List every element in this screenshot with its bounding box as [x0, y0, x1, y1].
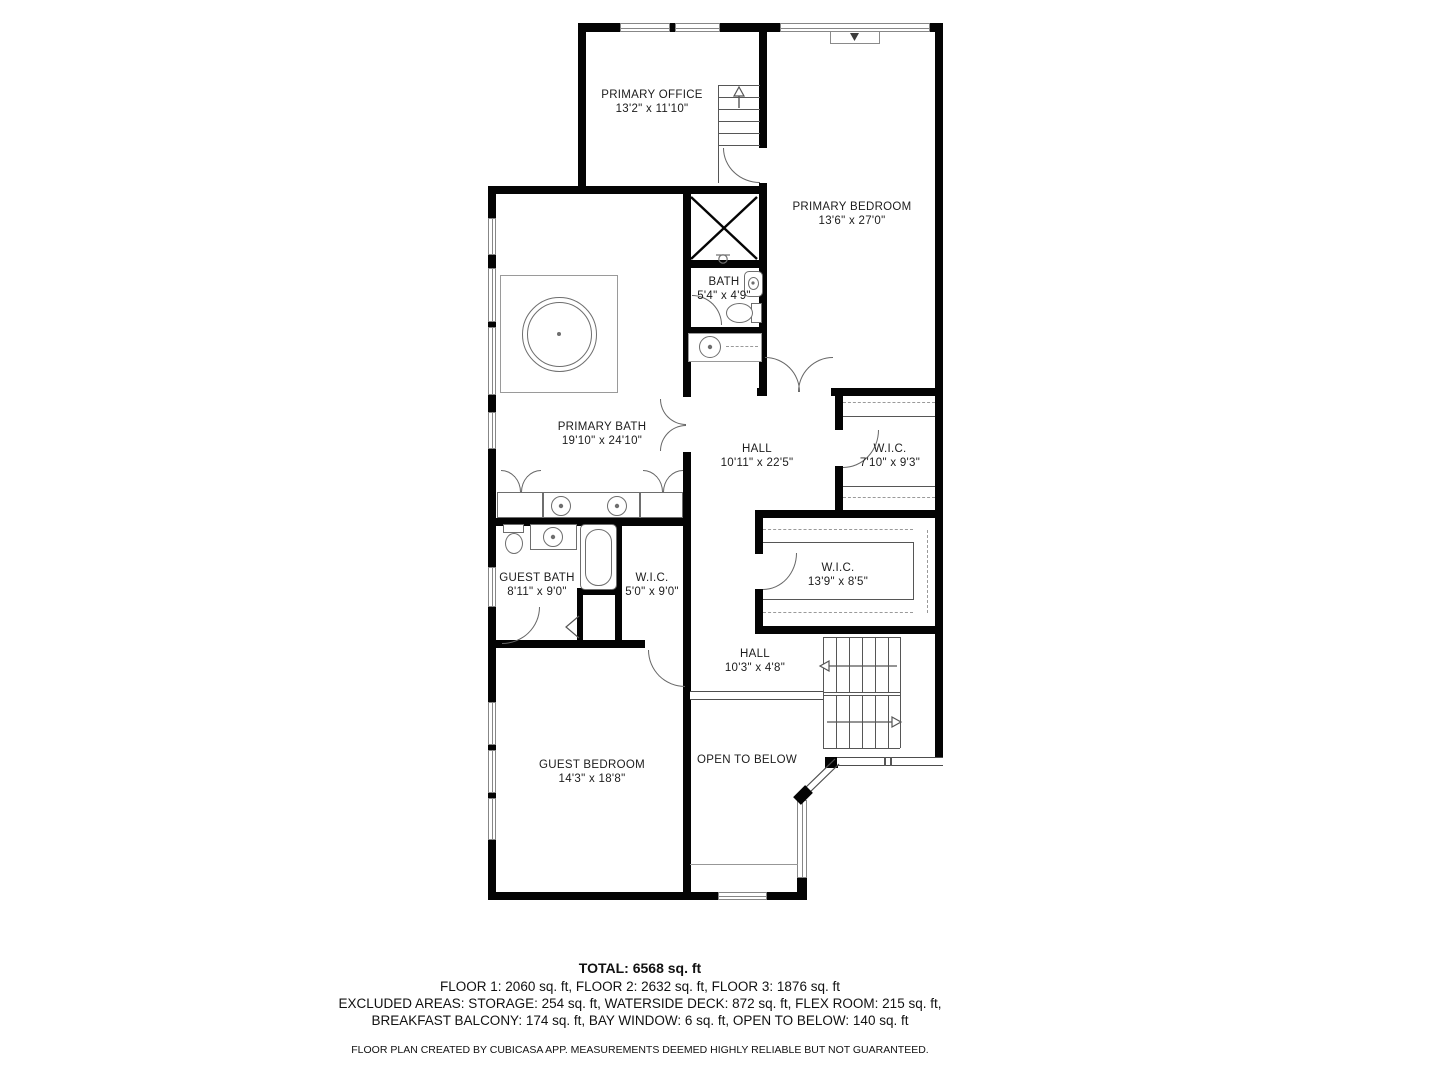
stairs-edge	[718, 85, 719, 183]
floor-areas-text: FLOOR 1: 2060 sq. ft, FLOOR 2: 2632 sq. …	[0, 979, 1280, 994]
stair-tread	[849, 695, 850, 748]
room-label-guest-bath: GUEST BATH 8'11" x 9'0"	[499, 571, 574, 599]
french-door-swing	[765, 357, 800, 392]
stair-tread	[862, 695, 863, 748]
stair-tread	[718, 97, 760, 98]
stairs-landing-line	[823, 692, 900, 693]
floor-below-edge	[690, 864, 798, 865]
shaft-x-icon	[691, 197, 757, 259]
stair-tread	[718, 133, 760, 134]
wall	[759, 23, 767, 148]
wall	[488, 186, 767, 194]
railing	[690, 691, 823, 700]
window-seat	[830, 31, 880, 44]
stairs-edge	[900, 637, 901, 748]
room-label-wic-13: W.I.C. 13'9" x 8'5"	[808, 561, 868, 589]
counter-dashed-line	[726, 346, 758, 347]
room-name: BATH	[697, 275, 751, 289]
closet-shelf-dashed	[843, 497, 935, 498]
closet-shelf-dashed	[843, 402, 935, 403]
stair-tread	[862, 637, 863, 692]
sink-icon	[543, 527, 563, 547]
closet-rod	[763, 599, 913, 600]
room-name: GUEST BATH	[499, 571, 574, 585]
total-area-text: TOTAL: 6568 sq. ft	[0, 960, 1280, 976]
room-name: PRIMARY BEDROOM	[792, 200, 911, 214]
wall	[578, 23, 586, 194]
stair-tread	[718, 109, 760, 110]
room-label-open-to-below: OPEN TO BELOW	[697, 753, 797, 767]
french-door-swing	[798, 357, 833, 392]
room-name: GUEST BEDROOM	[539, 758, 645, 772]
closet-rod	[763, 542, 913, 543]
window	[488, 567, 496, 607]
closet-shelf-dashed	[763, 612, 913, 613]
wall	[577, 593, 583, 648]
closet-door-swing	[521, 470, 541, 492]
stair-tread	[718, 145, 760, 146]
sink-icon	[699, 336, 721, 358]
railing-baluster	[890, 757, 892, 766]
wall	[835, 396, 843, 430]
room-dims: 7'10" x 9'3"	[860, 456, 920, 470]
wall	[683, 192, 691, 397]
room-label-wic-right: W.I.C. 7'10" x 9'3"	[860, 442, 920, 470]
room-label-hall-lower: HALL 10'3" x 4'8"	[725, 647, 785, 675]
arrow-head-icon	[820, 661, 829, 671]
room-label-hall-upper: HALL 10'11" x 22'5"	[721, 442, 794, 470]
closet-box	[497, 492, 543, 518]
excluded-areas-text-1: EXCLUDED AREAS: STORAGE: 254 sq. ft, WAT…	[0, 996, 1280, 1011]
room-dims: 5'0" x 9'0"	[625, 585, 679, 599]
wall	[755, 510, 943, 518]
wall	[683, 452, 691, 648]
room-name: HALL	[725, 647, 785, 661]
stair-tread	[875, 637, 876, 692]
bathtub-inner	[585, 529, 612, 586]
window	[718, 892, 767, 900]
window	[620, 23, 670, 32]
wall	[755, 626, 943, 634]
double-door-swing	[660, 425, 686, 451]
wall	[831, 388, 943, 396]
room-name: W.I.C.	[808, 561, 868, 575]
window	[797, 800, 807, 878]
room-dims: 10'3" x 4'8"	[725, 661, 785, 675]
room-label-primary-bedroom: PRIMARY BEDROOM 13'6" x 27'0"	[792, 200, 911, 228]
closet-shelf-dashed	[927, 530, 928, 613]
stair-tread	[836, 637, 837, 692]
toilet-icon	[505, 533, 523, 554]
wall	[935, 23, 943, 763]
disclaimer-text: FLOOR PLAN CREATED BY CUBICASA APP. MEAS…	[0, 1044, 1280, 1056]
closet-door-swing	[643, 470, 663, 492]
window	[488, 327, 496, 395]
stair-tread	[849, 637, 850, 692]
room-dims: 13'6" x 27'0"	[792, 214, 911, 228]
room-dims: 8'11" x 9'0"	[499, 585, 574, 599]
door-swing	[763, 553, 797, 590]
door-swing	[502, 607, 540, 644]
toilet-tank	[503, 524, 524, 533]
room-name: OPEN TO BELOW	[697, 753, 797, 767]
closet-rod	[913, 542, 914, 600]
room-label-primary-bath: PRIMARY BATH 19'10" x 24'10"	[558, 420, 647, 448]
wall	[755, 589, 763, 634]
stair-tread	[875, 695, 876, 748]
railing	[807, 764, 839, 795]
stairs-edge	[823, 748, 900, 749]
window	[488, 750, 496, 793]
wall	[835, 466, 843, 518]
room-name: PRIMARY BATH	[558, 420, 647, 434]
room-name: HALL	[721, 442, 794, 456]
stair-tread	[836, 695, 837, 748]
room-name: W.I.C.	[860, 442, 920, 456]
window	[488, 268, 496, 322]
summary-text-block: TOTAL: 6568 sq. ft FLOOR 1: 2060 sq. ft,…	[0, 960, 1280, 1056]
room-dims: 13'9" x 8'5"	[808, 575, 868, 589]
window	[675, 23, 720, 32]
room-dims: 13'2" x 11'10"	[601, 102, 703, 116]
floor-plan-canvas: PRIMARY OFFICE 13'2" x 11'10" PRIMARY BE…	[0, 0, 1440, 1080]
room-dims: 19'10" x 24'10"	[558, 434, 647, 448]
closet-door-swing	[501, 470, 521, 492]
stair-tread	[888, 637, 889, 692]
wall	[755, 518, 763, 554]
railing-baluster	[884, 757, 886, 766]
door-swing	[723, 148, 760, 183]
closet-rod	[843, 486, 935, 487]
room-dims: 14'3" x 18'8"	[539, 772, 645, 786]
room-label-primary-office: PRIMARY OFFICE 13'2" x 11'10"	[601, 88, 703, 116]
stair-tread	[718, 121, 760, 122]
room-dims: 10'11" x 22'5"	[721, 456, 794, 470]
window	[488, 412, 496, 449]
excluded-areas-text-2: BREAKFAST BALCONY: 174 sq. ft, BAY WINDO…	[0, 1013, 1280, 1028]
window	[488, 702, 496, 745]
arrow-head-icon	[734, 87, 744, 96]
window	[488, 798, 496, 840]
room-label-guest-bedroom: GUEST BEDROOM 14'3" x 18'8"	[539, 758, 645, 786]
window	[488, 218, 496, 255]
room-dims: 5'4" x 4'9"	[697, 289, 751, 303]
closet-rod	[843, 416, 935, 417]
sink-icon	[551, 496, 571, 516]
room-name: W.I.C.	[625, 571, 679, 585]
wall	[797, 878, 807, 893]
double-door-swing	[660, 399, 686, 425]
room-label-bath: BATH 5'4" x 4'9"	[697, 275, 751, 303]
shaft-x-icon	[691, 197, 757, 259]
room-name: PRIMARY OFFICE	[601, 88, 703, 102]
round-tub-inner	[527, 302, 592, 367]
sink-icon	[607, 496, 627, 516]
room-label-wic-5: W.I.C. 5'0" x 9'0"	[625, 571, 679, 599]
door-swing	[648, 650, 685, 687]
toilet-icon	[726, 303, 753, 323]
wall	[687, 260, 765, 268]
plan-detail-overlay	[0, 0, 1440, 1080]
closet-door-swing	[663, 470, 683, 492]
closet-shelf-dashed	[763, 529, 913, 530]
closet-box	[640, 492, 683, 518]
stair-tread	[888, 695, 889, 748]
stairs-edge	[718, 85, 760, 86]
